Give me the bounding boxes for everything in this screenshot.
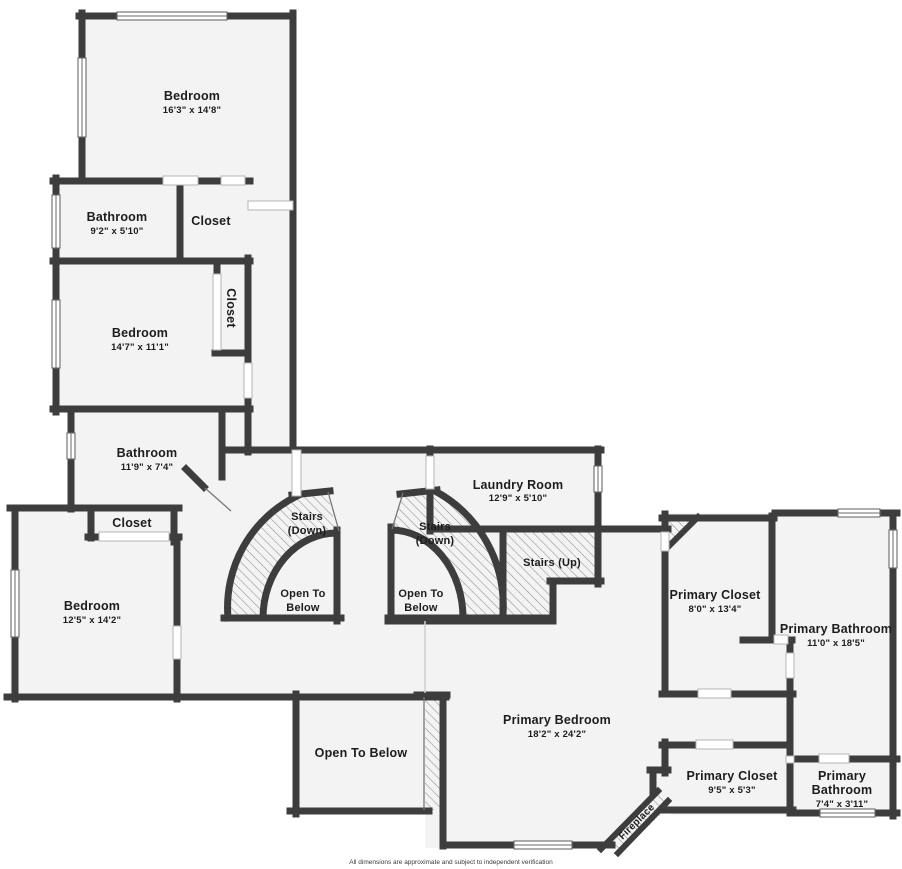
label-closet-top: Closet <box>191 214 231 228</box>
label-primary-bathroom-lower-1: Primary <box>818 769 866 783</box>
dims-bedroom-mid: 14'7" x 11'1" <box>111 342 169 353</box>
label-closet-lower: Closet <box>112 516 152 530</box>
label-primary-bathroom-lower-2: Bathroom <box>812 783 873 797</box>
dims-bedroom-left: 12'5" x 14'2" <box>63 615 121 626</box>
dims-primary-closet-lower: 9'5" x 5'3" <box>708 785 755 796</box>
dims-laundry: 12'9" x 5'10" <box>489 493 547 504</box>
label-open-right-2: Below <box>404 602 438 614</box>
label-primary-closet-upper: Primary Closet <box>669 588 761 602</box>
label-stairs-left-2: (Down) <box>288 525 327 537</box>
floor-plan-canvas: Bedroom 16'3" x 14'8" Bathroom 9'2" x 5'… <box>0 0 902 869</box>
label-open-left-1: Open To <box>280 588 325 600</box>
dims-bathroom-mid: 11'9" x 7'4" <box>121 462 173 473</box>
floor-areas <box>10 13 895 848</box>
label-bedroom-mid: Bedroom <box>112 326 168 340</box>
label-open-left-2: Below <box>286 602 320 614</box>
label-stairs-right-2: (Down) <box>416 535 455 547</box>
label-bathroom-mid: Bathroom <box>117 446 178 460</box>
floor-plan-drawing: Bedroom 16'3" x 14'8" Bathroom 9'2" x 5'… <box>0 0 902 869</box>
label-bedroom-top: Bedroom <box>164 89 220 103</box>
label-open-right-1: Open To <box>398 588 443 600</box>
label-closet-mid: Closet <box>224 288 238 328</box>
dims-bathroom-top: 9'2" x 5'10" <box>91 226 144 237</box>
disclaimer-text: All dimensions are approximate and subje… <box>349 859 553 866</box>
dims-bedroom-top: 16'3" x 14'8" <box>163 105 221 116</box>
label-stairs-up: Stairs (Up) <box>523 557 581 569</box>
label-primary-bathroom-upper: Primary Bathroom <box>780 622 892 636</box>
label-primary-closet-lower: Primary Closet <box>686 769 778 783</box>
dims-primary-bathroom-upper: 11'0" x 18'5" <box>807 638 865 649</box>
dims-primary-bathroom-lower: 7'4" x 3'11" <box>816 799 868 810</box>
label-stairs-left-1: Stairs <box>291 511 323 523</box>
dims-primary-bedroom: 18'2" x 24'2" <box>528 729 586 740</box>
dims-primary-closet-upper: 8'0" x 13'4" <box>689 604 742 615</box>
label-bathroom-top: Bathroom <box>87 210 148 224</box>
label-bedroom-left: Bedroom <box>64 599 120 613</box>
label-primary-bedroom: Primary Bedroom <box>503 713 611 727</box>
label-open-to-below-room: Open To Below <box>315 746 408 760</box>
label-laundry: Laundry Room <box>473 478 564 492</box>
chase-strip-hatch <box>425 697 441 810</box>
label-stairs-right-1: Stairs <box>419 521 451 533</box>
